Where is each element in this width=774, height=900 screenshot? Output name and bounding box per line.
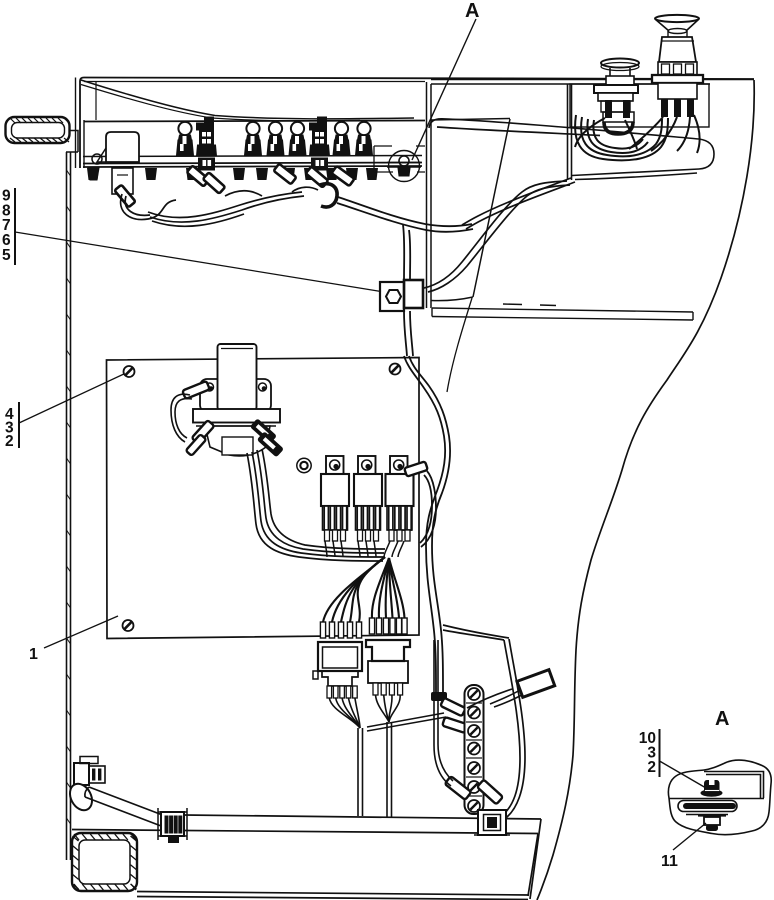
svg-text:A: A: [465, 0, 479, 22]
svg-text:11: 11: [661, 853, 678, 870]
svg-text:A: A: [715, 708, 729, 730]
svg-text:2: 2: [5, 433, 14, 450]
svg-text:2: 2: [647, 759, 656, 776]
svg-text:1: 1: [29, 646, 38, 663]
svg-text:5: 5: [2, 247, 11, 264]
